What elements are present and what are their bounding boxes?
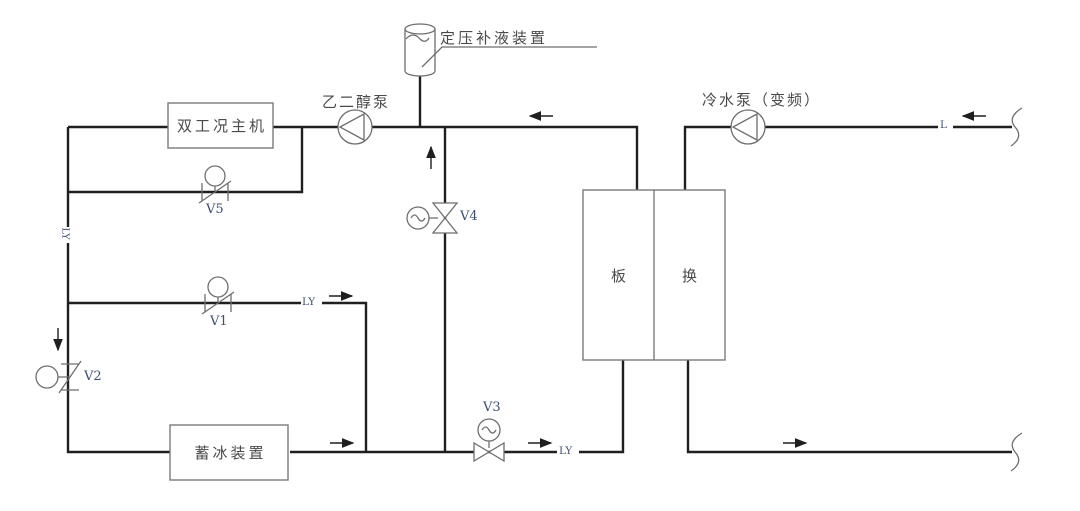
valve-v5-symbol: [199, 166, 231, 203]
line-tag-ly-return: LY: [559, 445, 572, 457]
glycol-pump-symbol: [338, 110, 372, 144]
chilled-water-pump-label: 冷水泵（变频）: [702, 89, 821, 110]
leader-line: [422, 47, 597, 67]
ice-storage-label: 蓄冰装置: [170, 425, 288, 480]
valve-v2-tag: V2: [84, 369, 102, 384]
chilled-water-pump-symbol: [731, 110, 765, 144]
pipe-chilled-water-return: [688, 360, 1012, 452]
expansion-tank-label: 定压补液装置: [440, 27, 548, 48]
flow-arrows: [58, 116, 986, 443]
valve-v3-symbol: [474, 419, 504, 461]
pipe-glycol-supply: [273, 127, 637, 190]
heat-exchanger-left-label: 板: [583, 190, 654, 360]
valve-v5-tag: V5: [206, 202, 224, 217]
line-tag-ly-left: LY: [59, 228, 70, 240]
heat-exchanger-right-label: 换: [654, 190, 725, 360]
valve-v3-tag: V3: [483, 400, 501, 415]
valve-v1-symbol: [202, 277, 234, 314]
line-tag-ly-supply: LY: [302, 296, 315, 308]
pipe-break-icon: [1011, 108, 1022, 146]
valve-v4-tag: V4: [460, 209, 478, 224]
glycol-pump-label: 乙二醇泵: [322, 91, 390, 112]
pipe-break-icon: [1011, 433, 1022, 471]
pipe-left-riser: [68, 127, 170, 452]
valve-v2-symbol: [36, 361, 81, 393]
diagram-canvas: [0, 0, 1080, 511]
valve-v4-symbol: [407, 203, 457, 233]
pipe-glycol-return: [290, 360, 623, 452]
valve-v1-tag: V1: [210, 314, 228, 329]
piping-diagram: 定压补液装置 乙二醇泵 冷水泵（变频） 双工况主机 蓄冰装置 板 换 V1 V2…: [0, 0, 1080, 511]
dual-mode-chiller-label: 双工况主机: [168, 103, 273, 148]
line-tag-l-chilled: L: [940, 119, 947, 131]
